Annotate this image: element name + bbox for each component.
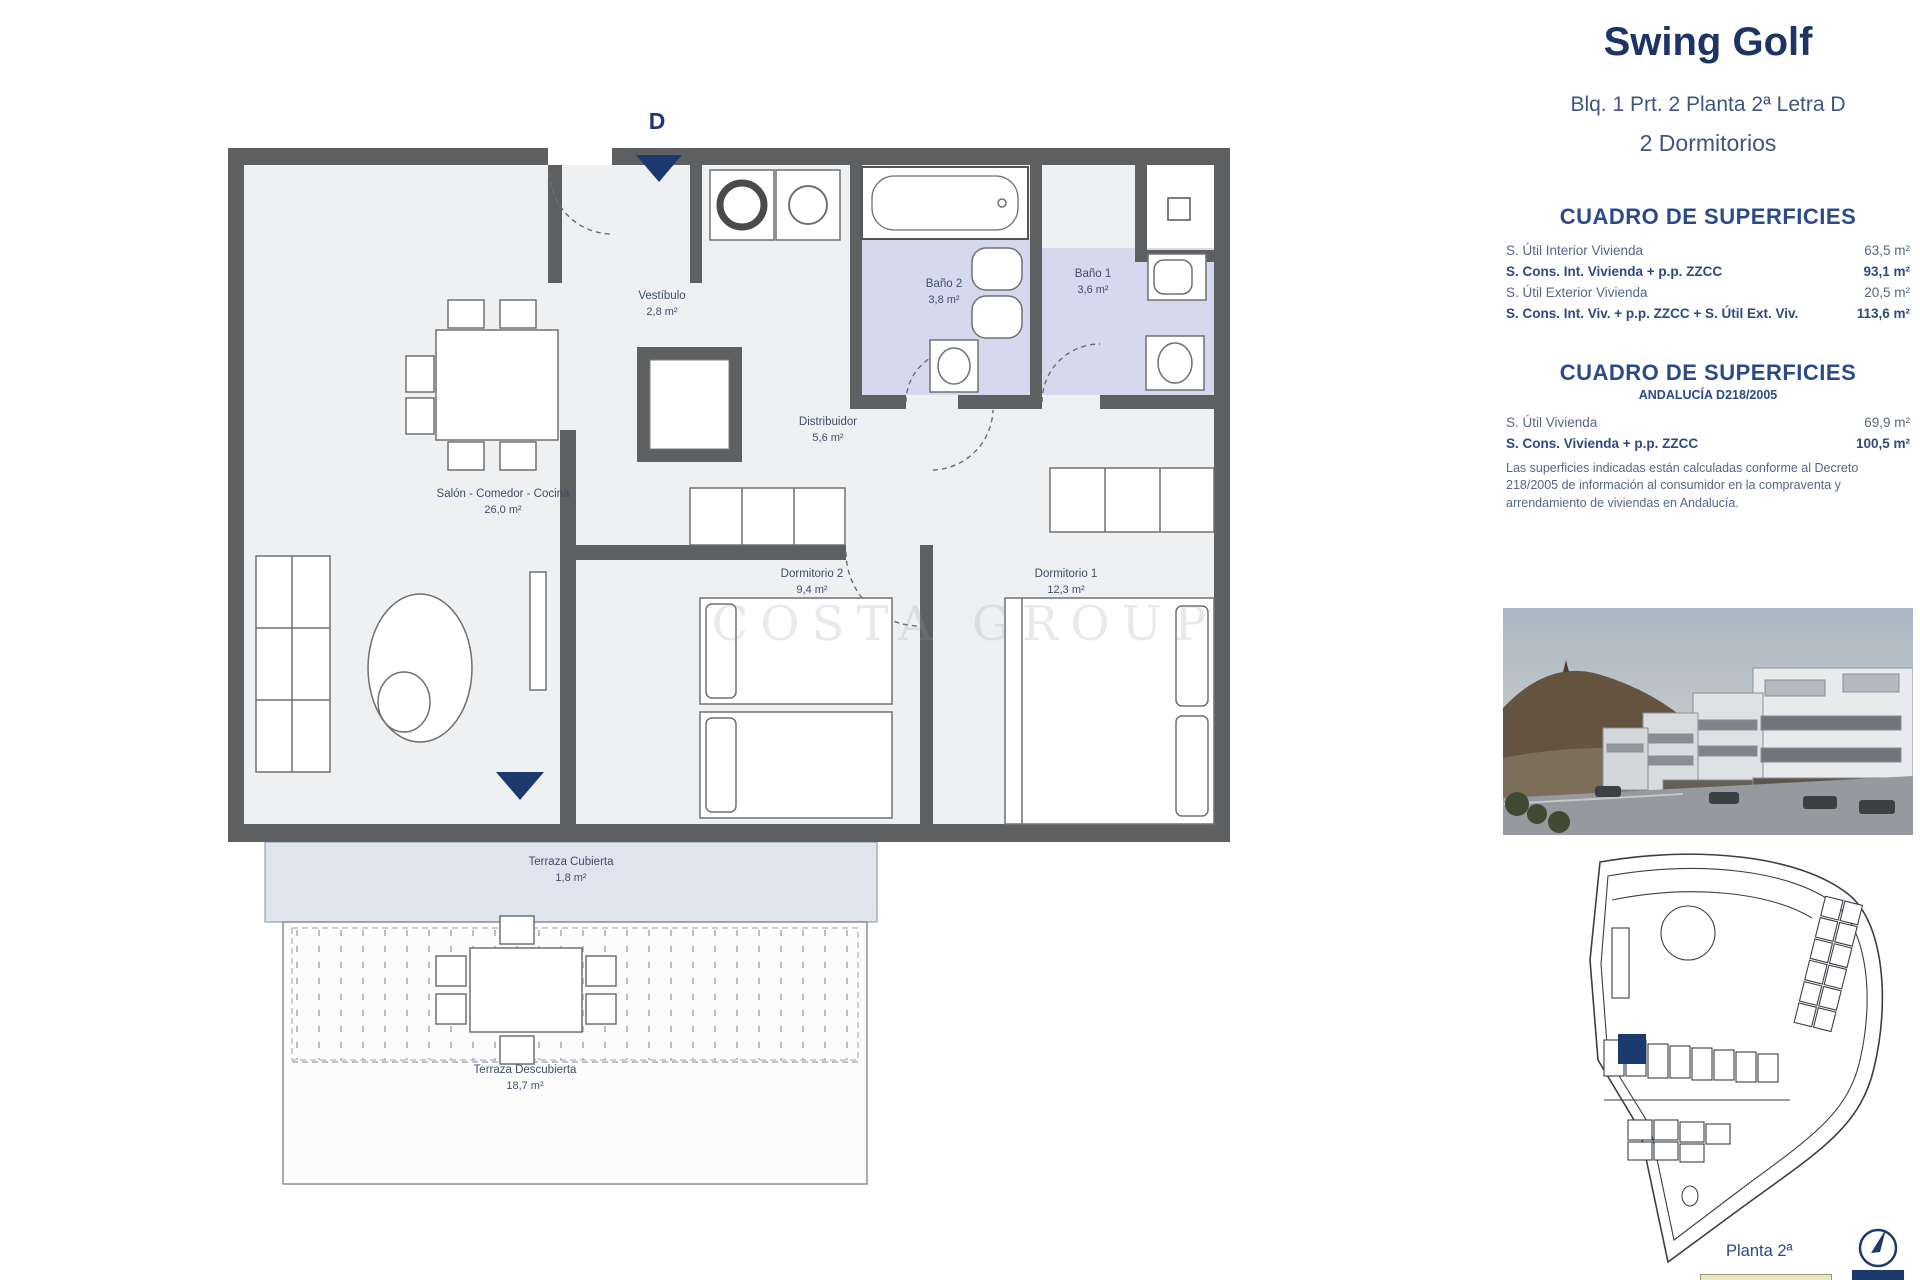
- sofa-icon: [256, 556, 330, 772]
- closet-icon: [690, 488, 845, 545]
- room-label-vestibulo: Vestíbulo2,8 m²: [638, 288, 685, 321]
- watermark-text: COSTA GROUP: [712, 596, 1219, 652]
- table-row: S. Útil Exterior Vivienda20,5 m²: [1506, 282, 1910, 303]
- floorplan-drawing: COSTA GROUP: [0, 0, 1240, 1280]
- bedroom-count: 2 Dormitorios: [1500, 130, 1916, 157]
- wardrobe-block: [650, 360, 729, 449]
- room-label-dormitorio1: Dormitorio 112,3 m²: [1035, 566, 1098, 599]
- siteplan-map: [1525, 845, 1905, 1275]
- toilet-icon: [1146, 336, 1204, 390]
- room-label-bano2: Baño 23,8 m²: [926, 276, 962, 309]
- cutoff-logo-sliver: [1852, 1270, 1904, 1280]
- single-bed-icon: [700, 712, 892, 818]
- project-title: Swing Golf: [1500, 20, 1916, 65]
- room-label-salon: Salón - Comedor - Cocina26,0 m²: [437, 486, 570, 519]
- table-row: S. Cons. Int. Viv. + p.p. ZZCC + S. Útil…: [1506, 303, 1910, 324]
- room-label-terraza-cubierta: Terraza Cubierta1,8 m²: [528, 854, 613, 887]
- tv-unit-icon: [530, 572, 546, 690]
- sink-icon: [930, 340, 978, 392]
- washer-icon: [710, 170, 774, 240]
- room-label-terraza-descubierta: Terraza Descubierta18,7 m²: [474, 1062, 577, 1095]
- info-panel: Swing Golf Blq. 1 Prt. 2 Planta 2ª Letra…: [1500, 0, 1916, 512]
- sink-icon: [1148, 254, 1206, 300]
- rug-armchair-icon: [368, 594, 472, 742]
- highlighted-unit: [1618, 1034, 1646, 1064]
- surfaces-subheading-2: ANDALUCÍA D218/2005: [1500, 388, 1916, 402]
- table-row: S. Útil Interior Vivienda63,5 m²: [1506, 240, 1910, 261]
- unit-reference: Blq. 1 Prt. 2 Planta 2ª Letra D: [1500, 93, 1916, 117]
- room-label-distribuidor: Distribuidor5,6 m²: [799, 414, 857, 447]
- bathtub-icon: [862, 167, 1028, 239]
- table-row: S. Cons. Int. Vivienda + p.p. ZZCC93,1 m…: [1506, 261, 1910, 282]
- surfaces-table-1: S. Útil Interior Vivienda63,5 m² S. Cons…: [1500, 240, 1916, 324]
- building-photo: [1503, 608, 1913, 835]
- toilet-icon: [972, 248, 1022, 290]
- siteplan-caption: Planta 2ª: [1726, 1242, 1793, 1261]
- legal-note: Las superficies indicadas están calculad…: [1500, 460, 1916, 512]
- room-label-dormitorio2: Dormitorio 29,4 m²: [781, 566, 844, 599]
- entrance-letter: D: [649, 108, 666, 135]
- table-row: S. Útil Vivienda69,9 m²: [1506, 412, 1910, 433]
- room-label-bano1: Baño 13,6 m²: [1075, 266, 1111, 299]
- cutoff-logo-sliver: [1700, 1274, 1832, 1280]
- surfaces-heading-2: CUADRO DE SUPERFICIES: [1500, 360, 1916, 386]
- surfaces-table-2: S. Útil Vivienda69,9 m² S. Cons. Viviend…: [1500, 412, 1916, 454]
- closet-icon: [1050, 468, 1214, 532]
- bidet-icon: [972, 296, 1022, 338]
- dryer-icon: [776, 170, 840, 240]
- table-row: S. Cons. Vivienda + p.p. ZZCC100,5 m²: [1506, 433, 1910, 454]
- floorplan-sheet: COSTA GROUP D Vestíbulo2,8 m² Baño 23,8 …: [0, 0, 1920, 1280]
- surfaces-heading-1: CUADRO DE SUPERFICIES: [1500, 204, 1916, 230]
